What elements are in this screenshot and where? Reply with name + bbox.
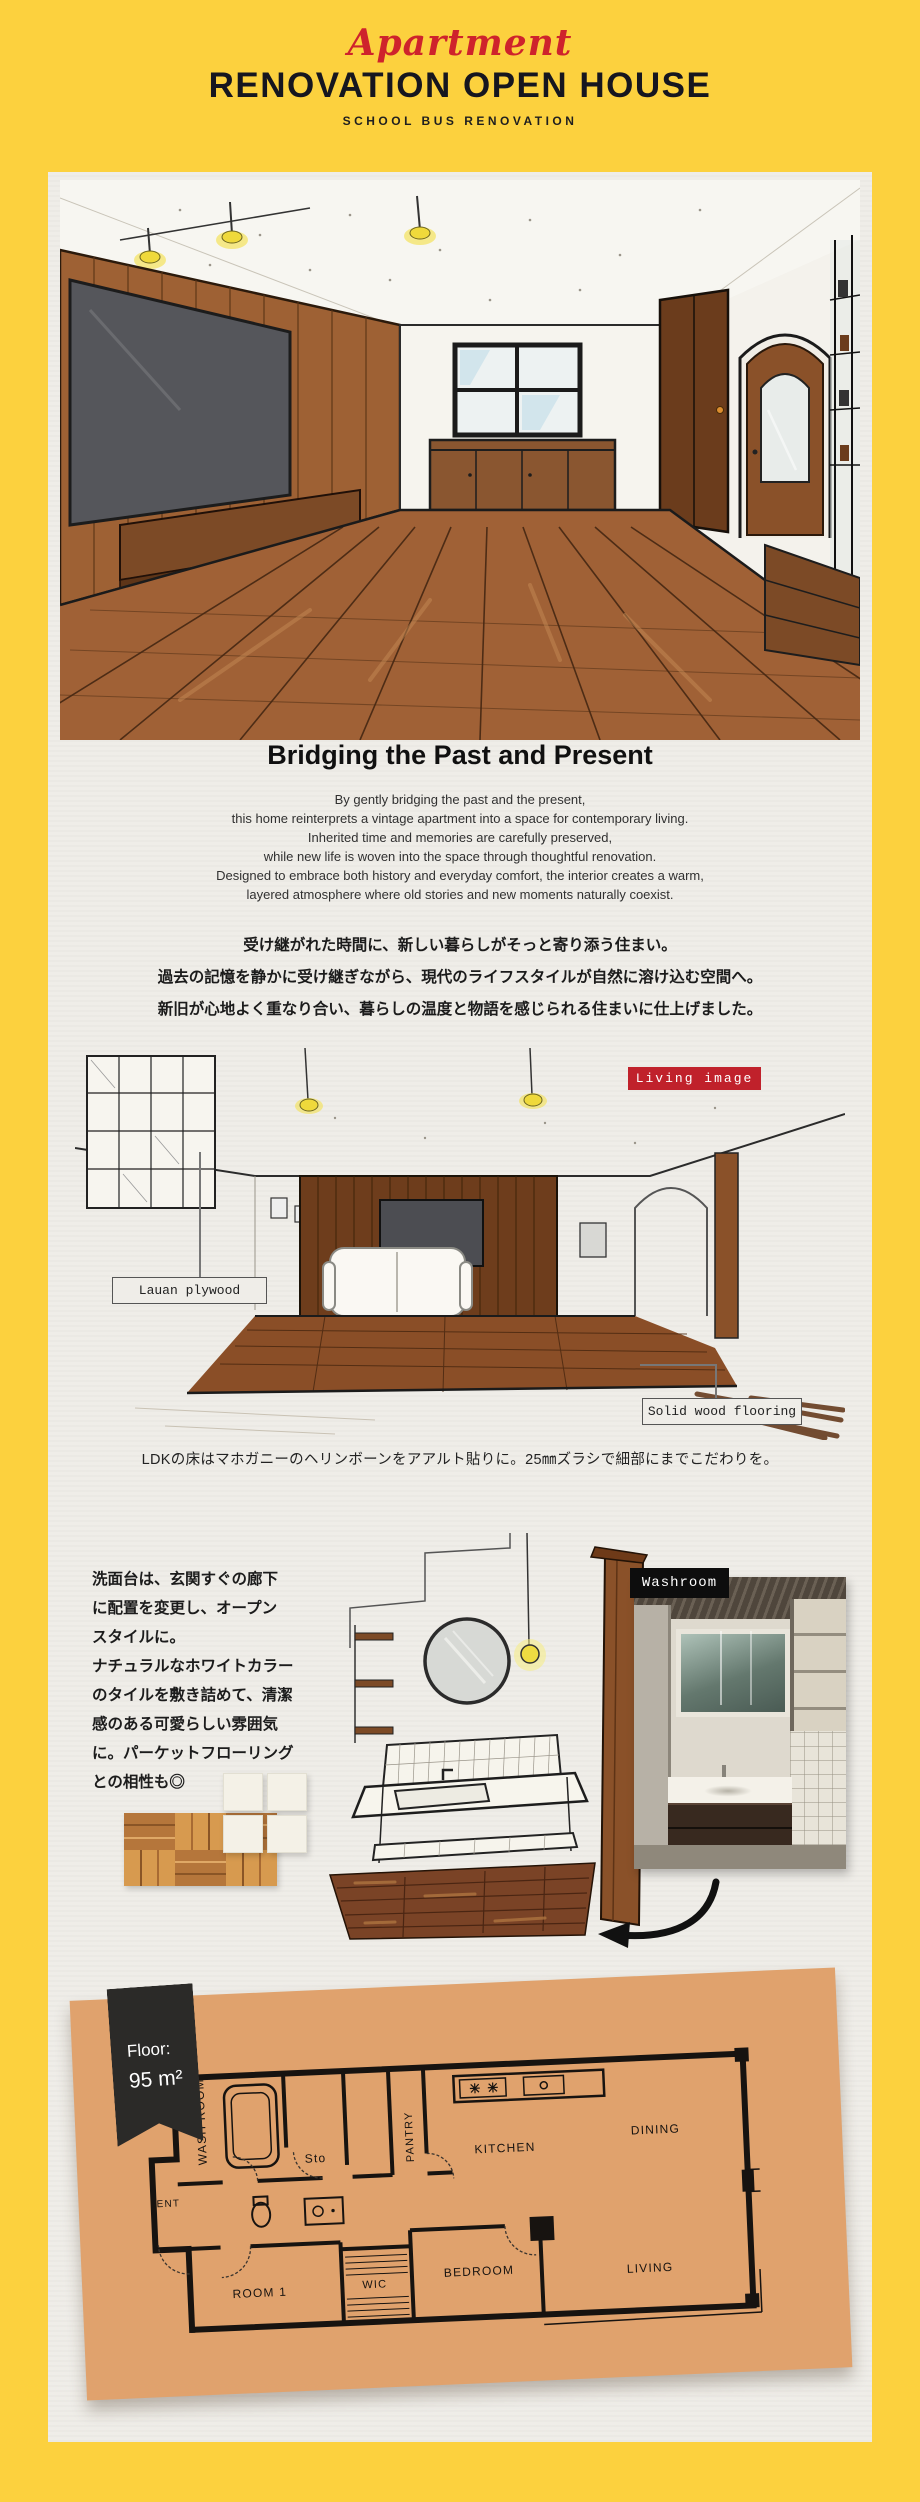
round-mirror <box>425 1619 509 1703</box>
floor-badge-label: Floor: <box>126 2039 171 2062</box>
ja-line: 過去の記憶を静かに受け継ぎながら、現代のライフスタイルが自然に溶け込む空間へ。 <box>0 962 920 994</box>
room-label-kitchen: KITCHEN <box>474 2140 536 2157</box>
parquet-floor <box>330 1863 595 1939</box>
room-label-wic: WIC <box>362 2278 387 2291</box>
tile <box>267 1773 307 1811</box>
living-image-illustration <box>75 1048 845 1440</box>
page-title: RENOVATION OPEN HOUSE <box>0 66 920 106</box>
wood-floor <box>187 1316 737 1393</box>
small-frame <box>271 1198 287 1218</box>
ja-line: 新旧が心地よく重なり合い、暮らしの温度と物語を感じられる住まいに仕上げました。 <box>0 994 920 1026</box>
intro-paragraph-ja: 受け継がれた時間に、新しい暮らしがそっと寄り添う住まい。 過去の記憶を静かに受け… <box>0 930 920 1026</box>
sideboard <box>430 440 615 510</box>
intro-paragraph-en: By gently bridging the past and the pres… <box>0 790 920 904</box>
arrow-icon <box>588 1874 728 1954</box>
photo-counter <box>668 1777 792 1803</box>
sofa <box>323 1248 472 1316</box>
toilet-icon <box>251 2196 270 2227</box>
label-connector <box>715 1364 717 1399</box>
photo-tile-wall <box>790 1731 846 1845</box>
room-label-ent: ENT <box>156 2198 180 2210</box>
solid-wood-flooring-label: Solid wood flooring <box>642 1398 802 1425</box>
photo-drawer-line <box>668 1827 792 1829</box>
washroom-photo <box>634 1577 846 1869</box>
photo-mirror-seam <box>720 1631 722 1705</box>
small-frame <box>580 1223 606 1257</box>
ja-line: 受け継がれた時間に、新しい暮らしがそっと寄り添う住まい。 <box>0 930 920 962</box>
lauan-plywood-label: Lauan plywood <box>112 1277 267 1304</box>
washroom-tag: Washroom <box>630 1568 729 1598</box>
photo-mirror-seam <box>750 1631 752 1705</box>
room-label-sto: Sto <box>304 2151 326 2166</box>
photo-wall <box>634 1605 671 1869</box>
kitchen-counter <box>453 2070 604 2103</box>
room-label-bedroom: BEDROOM <box>444 2263 515 2280</box>
pendant-lamp-icon <box>514 1533 546 1671</box>
header-script-word: Apartment <box>0 22 920 64</box>
tile-sample <box>223 1773 307 1853</box>
page-subtitle: SCHOOL BUS RENOVATION <box>0 114 920 128</box>
tile <box>223 1773 263 1811</box>
tile <box>223 1815 263 1853</box>
en-line: By gently bridging the past and the pres… <box>0 790 920 809</box>
arch-outline <box>635 1188 707 1316</box>
label-connector <box>199 1152 201 1278</box>
wardrobe <box>660 290 728 532</box>
photo-floor <box>634 1845 846 1869</box>
frame-grid <box>87 1056 215 1208</box>
section-heading: Bridging the Past and Present <box>0 740 920 771</box>
tile <box>267 1815 307 1853</box>
window <box>455 345 580 435</box>
photo-shelving <box>790 1599 846 1731</box>
floor-badge-value: 95 m² <box>128 2066 183 2094</box>
room-label-room1: ROOM 1 <box>232 2285 287 2301</box>
vanity-shelf <box>373 1833 577 1860</box>
en-line: while new life is woven into the space t… <box>0 847 920 866</box>
living-room-illustration <box>60 180 860 740</box>
living-image-tag: Living image <box>628 1067 761 1090</box>
en-line: Inherited time and memories are carefull… <box>0 828 920 847</box>
wall-shelves <box>355 1625 393 1743</box>
poster-page: { "theme":{"frame_yellow":"#FCD13E","pap… <box>0 0 920 2502</box>
room-label-dining: DINING <box>631 2121 681 2137</box>
en-line: this home reinterprets a vintage apartme… <box>0 809 920 828</box>
floorplan-drawing: WASH ROOM Sto PANTRY KITCHEN DINING ENT … <box>102 2017 816 2377</box>
washbasin-icon <box>304 2197 343 2225</box>
flooring-caption: LDKの床はマホガニーのヘリンボーンをアアルト貼りに。25㎜ズラシで細部にまでこ… <box>0 1448 920 1469</box>
floor-area-badge: Floor: 95 m² <box>107 1983 204 2147</box>
room-label-living: LIVING <box>627 2260 674 2276</box>
wood-pillar <box>715 1153 738 1338</box>
arched-door <box>740 335 830 538</box>
en-line: layered atmosphere where old stories and… <box>0 885 920 904</box>
label-connector <box>640 1364 717 1366</box>
en-line: Designed to embrace both history and eve… <box>0 866 920 885</box>
pendant-lamps-icon <box>295 1048 547 1114</box>
photo-mirror-cabinet <box>676 1629 790 1717</box>
room-label-pantry: PANTRY <box>403 2111 417 2162</box>
